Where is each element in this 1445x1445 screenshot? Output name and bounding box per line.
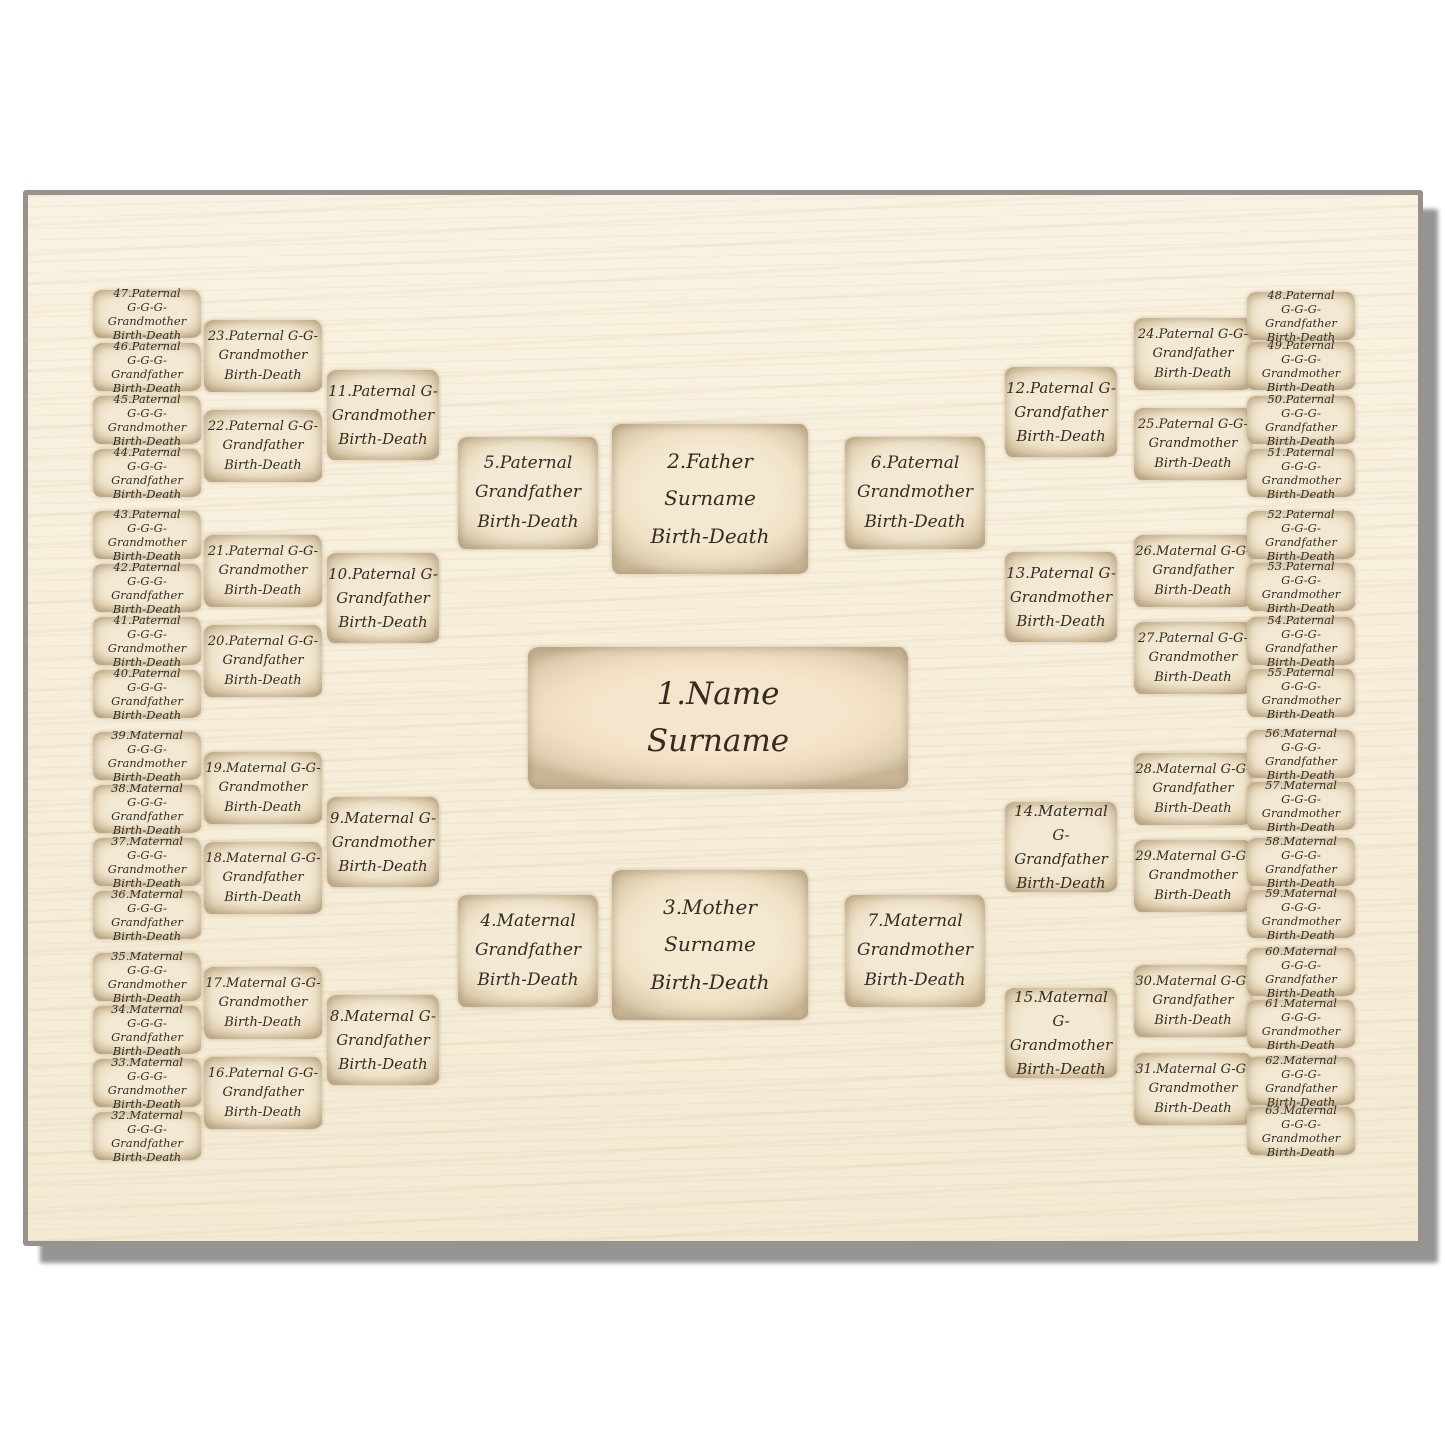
pedigree-box-10: 10.Paternal G- Grandfather Birth-Death [327,553,439,643]
box-line: G-G-G-Grandfather [1247,406,1355,434]
box-line: Grandmother [204,778,322,798]
box-line: Grandmother [1134,1079,1252,1099]
box-line: Birth-Death [1247,707,1355,721]
box-line: 41.Paternal [93,613,201,627]
box-line: Grandmother [845,478,985,507]
pedigree-box-23: 23.Paternal G-G- Grandmother Birth-Death [204,320,322,392]
pedigree-box-58: 58.Maternal G-G-G-Grandfather Birth-Deat… [1247,838,1355,886]
box-line: 38.Maternal [93,781,201,795]
box-line: G-G-G-Grandfather [1247,958,1355,986]
pedigree-box-1: 1.Name Surname [528,647,908,789]
box-line: Birth-Death [327,610,439,634]
box-line: Birth-Death [845,966,985,995]
box-line: Grandfather [1134,991,1252,1011]
box-line: 23.Paternal G-G- [204,327,322,347]
box-line: G-G-G-Grandmother [1247,459,1355,487]
box-line: G-G-G-Grandfather [93,680,201,708]
box-line: 58.Maternal [1247,834,1355,848]
box-line: 27.Paternal G-G- [1134,629,1252,649]
pedigree-box-29: 29.Maternal G-G- Grandmother Birth-Death [1134,840,1252,912]
pedigree-box-48: 48.Paternal G-G-G-Grandfather Birth-Deat… [1247,292,1355,340]
box-line: 12.Paternal G- [1005,376,1117,400]
pedigree-box-21: 21.Paternal G-G- Grandmother Birth-Death [204,535,322,607]
pedigree-box-63: 63.Maternal G-G-G-Grandmother Birth-Deat… [1247,1107,1355,1155]
box-line: G-G-G-Grandfather [93,459,201,487]
box-line: 49.Paternal [1247,338,1355,352]
box-line: G-G-G-Grandmother [1247,679,1355,707]
box-line: Birth-Death [612,518,808,556]
box-line: Birth-Death [204,456,322,476]
box-line: G-G-G-Grandmother [1247,792,1355,820]
pedigree-box-55: 55.Paternal G-G-G-Grandmother Birth-Deat… [1247,669,1355,717]
box-line: 47.Paternal [93,286,201,300]
box-line: G-G-G-Grandfather [1247,627,1355,655]
box-line: G-G-G-Grandmother [93,406,201,434]
box-line: G-G-G-Grandfather [93,795,201,823]
box-line: 1.Name [528,671,908,718]
box-line: 10.Paternal G- [327,562,439,586]
box-line: 13.Paternal G- [1005,561,1117,585]
box-line: 25.Paternal G-G- [1134,415,1252,435]
box-line: Birth-Death [1134,364,1252,384]
box-line: Birth-Death [1247,1038,1355,1052]
pedigree-box-33: 33.Maternal G-G-G-Grandmother Birth-Deat… [93,1059,201,1107]
pedigree-box-31: 31.Maternal G-G- Grandmother Birth-Death [1134,1053,1252,1125]
pedigree-box-47: 47.Paternal G-G-G-Grandmother Birth-Deat… [93,290,201,338]
pedigree-box-61: 61.Maternal G-G-G-Grandmother Birth-Deat… [1247,1000,1355,1048]
box-line: Grandfather [458,478,598,507]
pedigree-box-41: 41.Paternal G-G-G-Grandmother Birth-Deat… [93,617,201,665]
box-line: Birth-Death [458,508,598,537]
pedigree-box-24: 24.Paternal G-G- Grandfather Birth-Death [1134,318,1252,390]
box-line: 22.Paternal G-G- [204,417,322,437]
box-line: 55.Paternal [1247,665,1355,679]
box-line: Birth-Death [204,888,322,908]
box-line: Birth-Death [327,427,439,451]
box-line: 29.Maternal G-G- [1134,847,1252,867]
box-line: 46.Paternal [93,339,201,353]
box-line: 16.Paternal G-G- [204,1064,322,1084]
box-line: 50.Paternal [1247,392,1355,406]
box-line: Surname [612,926,808,964]
box-line: Grandmother [204,346,322,366]
box-line: 33.Maternal [93,1055,201,1069]
box-line: 15.Maternal G- [1005,985,1117,1033]
box-line: Birth-Death [1134,799,1252,819]
box-line: 18.Maternal G-G- [204,849,322,869]
box-line: G-G-G-Grandmother [93,300,201,328]
box-line: Birth-Death [327,1052,439,1076]
box-line: G-G-G-Grandfather [93,901,201,929]
box-line: Grandmother [204,561,322,581]
pedigree-box-53: 53.Paternal G-G-G-Grandmother Birth-Deat… [1247,563,1355,611]
pedigree-box-45: 45.Paternal G-G-G-Grandmother Birth-Deat… [93,396,201,444]
box-line: 31.Maternal G-G- [1134,1060,1252,1080]
pedigree-box-32: 32.Maternal G-G-G-Grandfather Birth-Deat… [93,1112,201,1160]
box-line: G-G-G-Grandfather [93,353,201,381]
box-line: Grandfather [1134,779,1252,799]
box-line: G-G-G-Grandfather [93,1016,201,1044]
page-background: 1.Name Surname 2.Father Surname Birth-De… [0,0,1445,1445]
box-line: G-G-G-Grandmother [93,848,201,876]
box-line: 44.Paternal [93,445,201,459]
box-line: 45.Paternal [93,392,201,406]
box-line: 63.Maternal [1247,1103,1355,1117]
box-line: Birth-Death [204,1013,322,1033]
pedigree-box-11: 11.Paternal G- Grandmother Birth-Death [327,370,439,460]
box-line: Birth-Death [1134,1011,1252,1031]
box-line: Grandfather [1005,400,1117,424]
box-line: 43.Paternal [93,507,201,521]
box-line: G-G-G-Grandfather [93,574,201,602]
pedigree-box-14: 14.Maternal G- Grandfather Birth-Death [1005,802,1117,892]
box-line: 7.Maternal [845,907,985,936]
pedigree-box-52: 52.Paternal G-G-G-Grandfather Birth-Deat… [1247,511,1355,559]
box-line: Grandmother [1134,434,1252,454]
box-line: Birth-Death [1134,1099,1252,1119]
box-line: Grandfather [327,586,439,610]
pedigree-box-56: 56.Maternal G-G-G-Grandfather Birth-Deat… [1247,730,1355,778]
box-line: 9.Maternal G- [327,806,439,830]
box-line: 52.Paternal [1247,507,1355,521]
box-line: 42.Paternal [93,560,201,574]
pedigree-box-3: 3.Mother Surname Birth-Death [612,870,808,1020]
pedigree-box-34: 34.Maternal G-G-G-Grandfather Birth-Deat… [93,1006,201,1054]
box-line: 17.Maternal G-G- [204,974,322,994]
pedigree-box-12: 12.Paternal G- Grandfather Birth-Death [1005,367,1117,457]
box-line: Birth-Death [1134,886,1252,906]
box-line: 61.Maternal [1247,996,1355,1010]
box-line: Grandfather [204,436,322,456]
box-line: Grandmother [204,993,322,1013]
box-line: 40.Paternal [93,666,201,680]
pedigree-box-2: 2.Father Surname Birth-Death [612,424,808,574]
box-line: Birth-Death [93,708,201,722]
pedigree-box-26: 26.Maternal G-G- Grandfather Birth-Death [1134,535,1252,607]
box-line: 21.Paternal G-G- [204,542,322,562]
box-line: G-G-G-Grandmother [1247,352,1355,380]
box-line: Grandmother [845,936,985,965]
box-line: Grandfather [1005,847,1117,871]
pedigree-box-17: 17.Maternal G-G- Grandmother Birth-Death [204,967,322,1039]
box-line: 51.Paternal [1247,445,1355,459]
box-line: Grandmother [1134,648,1252,668]
pedigree-box-22: 22.Paternal G-G- Grandfather Birth-Death [204,410,322,482]
pedigree-box-6: 6.Paternal Grandmother Birth-Death [845,437,985,549]
box-line: Surname [528,718,908,765]
box-line: 35.Maternal [93,949,201,963]
box-line: Grandfather [327,1028,439,1052]
box-line: G-G-G-Grandfather [1247,302,1355,330]
box-line: 5.Paternal [458,449,598,478]
box-line: 48.Paternal [1247,288,1355,302]
pedigree-box-49: 49.Paternal G-G-G-Grandmother Birth-Deat… [1247,342,1355,390]
box-line: Grandfather [1134,561,1252,581]
box-line: 53.Paternal [1247,559,1355,573]
pedigree-box-18: 18.Maternal G-G- Grandfather Birth-Death [204,842,322,914]
pedigree-box-59: 59.Maternal G-G-G-Grandmother Birth-Deat… [1247,890,1355,938]
box-line: Grandmother [1134,866,1252,886]
pedigree-box-43: 43.Paternal G-G-G-Grandmother Birth-Deat… [93,511,201,559]
box-line: Birth-Death [93,929,201,943]
pedigree-box-60: 60.Maternal G-G-G-Grandfather Birth-Deat… [1247,948,1355,996]
family-tree-board: 1.Name Surname 2.Father Surname Birth-De… [23,190,1423,1246]
box-line: 34.Maternal [93,1002,201,1016]
pedigree-box-30: 30.Maternal G-G- Grandfather Birth-Death [1134,965,1252,1037]
pedigree-box-44: 44.Paternal G-G-G-Grandfather Birth-Deat… [93,449,201,497]
box-line: Birth-Death [1247,820,1355,834]
pedigree-box-19: 19.Maternal G-G- Grandmother Birth-Death [204,752,322,824]
box-line: G-G-G-Grandmother [1247,1117,1355,1145]
box-line: G-G-G-Grandmother [93,521,201,549]
box-line: Birth-Death [93,487,201,501]
box-line: Birth-Death [1134,581,1252,601]
pedigree-box-50: 50.Paternal G-G-G-Grandfather Birth-Deat… [1247,396,1355,444]
box-line: G-G-G-Grandmother [93,742,201,770]
box-line: 57.Maternal [1247,778,1355,792]
pedigree-box-51: 51.Paternal G-G-G-Grandmother Birth-Deat… [1247,449,1355,497]
box-line: 26.Maternal G-G- [1134,542,1252,562]
pedigree-box-25: 25.Paternal G-G- Grandmother Birth-Death [1134,408,1252,480]
box-line: 8.Maternal G- [327,1004,439,1028]
box-line: 24.Paternal G-G- [1134,325,1252,345]
box-line: Grandmother [327,403,439,427]
box-line: Birth-Death [1134,454,1252,474]
box-line: Grandfather [1134,344,1252,364]
pedigree-box-57: 57.Maternal G-G-G-Grandmother Birth-Deat… [1247,782,1355,830]
box-line: Birth-Death [1134,668,1252,688]
box-line: 11.Paternal G- [327,379,439,403]
box-line: 62.Maternal [1247,1053,1355,1067]
box-line: Grandmother [1005,585,1117,609]
pedigree-box-13: 13.Paternal G- Grandmother Birth-Death [1005,552,1117,642]
box-line: Grandmother [1005,1033,1117,1057]
pedigree-box-62: 62.Maternal G-G-G-Grandfather Birth-Deat… [1247,1057,1355,1105]
box-line: 30.Maternal G-G- [1134,972,1252,992]
box-line: 4.Maternal [458,907,598,936]
box-line: 2.Father [612,443,808,481]
pedigree-box-27: 27.Paternal G-G- Grandmother Birth-Death [1134,622,1252,694]
pedigree-box-46: 46.Paternal G-G-G-Grandfather Birth-Deat… [93,343,201,391]
box-line: G-G-G-Grandfather [93,1122,201,1150]
pedigree-box-7: 7.Maternal Grandmother Birth-Death [845,895,985,1007]
box-line: 32.Maternal [93,1108,201,1122]
box-line: Birth-Death [204,581,322,601]
pedigree-box-5: 5.Paternal Grandfather Birth-Death [458,437,598,549]
box-line: G-G-G-Grandmother [93,963,201,991]
box-line: Birth-Death [458,966,598,995]
box-line: 6.Paternal [845,449,985,478]
box-line: Birth-Death [204,366,322,386]
box-line: 36.Maternal [93,887,201,901]
box-line: 3.Mother [612,889,808,927]
box-line: G-G-G-Grandmother [93,627,201,655]
box-line: G-G-G-Grandfather [1247,848,1355,876]
pedigree-box-37: 37.Maternal G-G-G-Grandmother Birth-Deat… [93,838,201,886]
box-line: Birth-Death [1247,487,1355,501]
pedigree-box-38: 38.Maternal G-G-G-Grandfather Birth-Deat… [93,785,201,833]
box-line: Birth-Death [845,508,985,537]
box-line: Surname [612,480,808,518]
box-line: Birth-Death [612,964,808,1002]
box-line: 28.Maternal G-G- [1134,760,1252,780]
box-line: Birth-Death [204,671,322,691]
pedigree-box-9: 9.Maternal G- Grandmother Birth-Death [327,797,439,887]
box-line: Birth-Death [327,854,439,878]
box-line: Grandfather [204,651,322,671]
box-line: Birth-Death [1247,928,1355,942]
box-line: 19.Maternal G-G- [204,759,322,779]
box-line: Birth-Death [1005,424,1117,448]
pedigree-box-42: 42.Paternal G-G-G-Grandfather Birth-Deat… [93,564,201,612]
box-line: G-G-G-Grandfather [1247,1067,1355,1095]
box-line: 54.Paternal [1247,613,1355,627]
pedigree-box-35: 35.Maternal G-G-G-Grandmother Birth-Deat… [93,953,201,1001]
pedigree-box-16: 16.Paternal G-G- Grandfather Birth-Death [204,1057,322,1129]
box-line: Birth-Death [1005,871,1117,895]
box-line: 56.Maternal [1247,726,1355,740]
box-line: 39.Maternal [93,728,201,742]
pedigree-box-8: 8.Maternal G- Grandfather Birth-Death [327,995,439,1085]
box-line: Grandfather [204,1083,322,1103]
box-line: Birth-Death [1005,609,1117,633]
box-line: Birth-Death [1247,1145,1355,1159]
pedigree-box-28: 28.Maternal G-G- Grandfather Birth-Death [1134,753,1252,825]
box-line: Birth-Death [204,1103,322,1123]
box-line: 37.Maternal [93,834,201,848]
box-line: Grandfather [458,936,598,965]
box-line: G-G-G-Grandmother [1247,573,1355,601]
box-line: G-G-G-Grandmother [1247,900,1355,928]
box-line: Birth-Death [1005,1057,1117,1081]
pedigree-box-36: 36.Maternal G-G-G-Grandfather Birth-Deat… [93,891,201,939]
box-line: Grandmother [327,830,439,854]
box-line: 59.Maternal [1247,886,1355,900]
box-line: G-G-G-Grandmother [1247,1010,1355,1038]
box-line: 20.Paternal G-G- [204,632,322,652]
box-line: G-G-G-Grandfather [1247,521,1355,549]
pedigree-box-4: 4.Maternal Grandfather Birth-Death [458,895,598,1007]
box-line: Birth-Death [93,1150,201,1164]
pedigree-box-40: 40.Paternal G-G-G-Grandfather Birth-Deat… [93,670,201,718]
pedigree-box-54: 54.Paternal G-G-G-Grandfather Birth-Deat… [1247,617,1355,665]
box-line: 60.Maternal [1247,944,1355,958]
box-line: Birth-Death [204,798,322,818]
pedigree-box-39: 39.Maternal G-G-G-Grandmother Birth-Deat… [93,732,201,780]
box-line: G-G-G-Grandfather [1247,740,1355,768]
box-line: G-G-G-Grandmother [93,1069,201,1097]
box-line: Grandfather [204,868,322,888]
box-line: 14.Maternal G- [1005,799,1117,847]
pedigree-box-15: 15.Maternal G- Grandmother Birth-Death [1005,988,1117,1078]
pedigree-box-20: 20.Paternal G-G- Grandfather Birth-Death [204,625,322,697]
